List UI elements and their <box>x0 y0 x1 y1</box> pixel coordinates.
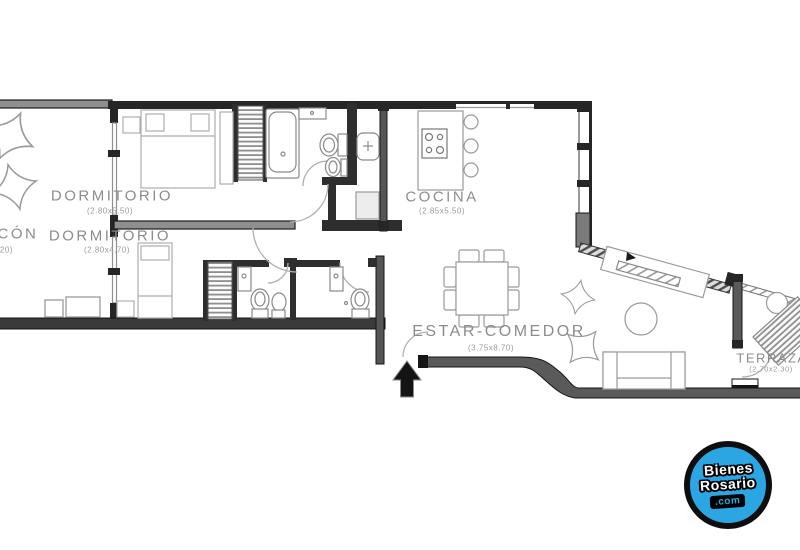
room-dims-estar-comedor: (3.75x8.70) <box>468 344 514 353</box>
toilet <box>320 134 347 156</box>
bedroom1-furniture <box>123 110 233 188</box>
floorplan-page: DORMITORIO (2.80x5.50) DORMITORIO (2.80x… <box>0 0 800 550</box>
living-furniture <box>555 246 709 389</box>
logo-text-com: .com <box>710 493 746 508</box>
bar-stool <box>464 115 478 129</box>
logo-text-line2: Rosario <box>700 475 757 494</box>
toilet <box>351 289 369 318</box>
cooktop <box>422 129 447 158</box>
washbasin <box>330 267 343 291</box>
room-label-estar-comedor: ESTAR-COMEDOR <box>412 323 586 341</box>
tv-console <box>601 246 710 297</box>
kitchen-furniture <box>418 111 478 190</box>
coffee-table <box>625 303 657 335</box>
plant-icon <box>558 277 597 316</box>
room-label-dormitorio-1: DORMITORIO <box>51 188 173 205</box>
plant-icon <box>0 103 43 169</box>
bar-stool <box>464 139 478 153</box>
toilet <box>251 289 269 318</box>
bidet <box>272 293 286 318</box>
room-label-dormitorio-2: DORMITORIO <box>49 228 171 245</box>
bidet <box>326 158 348 177</box>
room-dims-terraza: (2.70x2.30) <box>749 365 792 374</box>
floorplan-drawing <box>0 0 800 550</box>
balcony-furniture <box>0 103 100 317</box>
washbasin <box>238 267 251 291</box>
room-label-balcon: BALCÓN <box>0 226 38 243</box>
hall-closet <box>356 192 379 219</box>
entrance-arrow-icon <box>393 361 421 397</box>
room-label-cocina: COCINA <box>405 189 478 206</box>
middle-bathrooms-fixtures <box>238 267 369 318</box>
room-dims-dormitorio-2: (2.80x4.70) <box>84 246 130 255</box>
wardrobe-hatched <box>238 106 263 180</box>
room-label-terraza: TERRAZA <box>736 351 800 366</box>
dining-set <box>444 250 519 327</box>
sofa <box>603 352 685 389</box>
room-dims-balcon: (1.60x5.20) <box>0 246 13 255</box>
room-dims-dormitorio-1: (2.80x5.50) <box>87 207 133 216</box>
washbasin <box>357 133 379 160</box>
bienesrosario-logo: Bienes Rosario .com <box>684 441 772 529</box>
plant-icon <box>0 159 42 215</box>
dining-table <box>456 262 508 315</box>
room-dims-cocina: (2.85x5.50) <box>419 207 465 216</box>
closet-hatched <box>208 262 232 319</box>
main-bathroom-fixtures <box>266 108 379 219</box>
bar-stool <box>464 163 478 177</box>
